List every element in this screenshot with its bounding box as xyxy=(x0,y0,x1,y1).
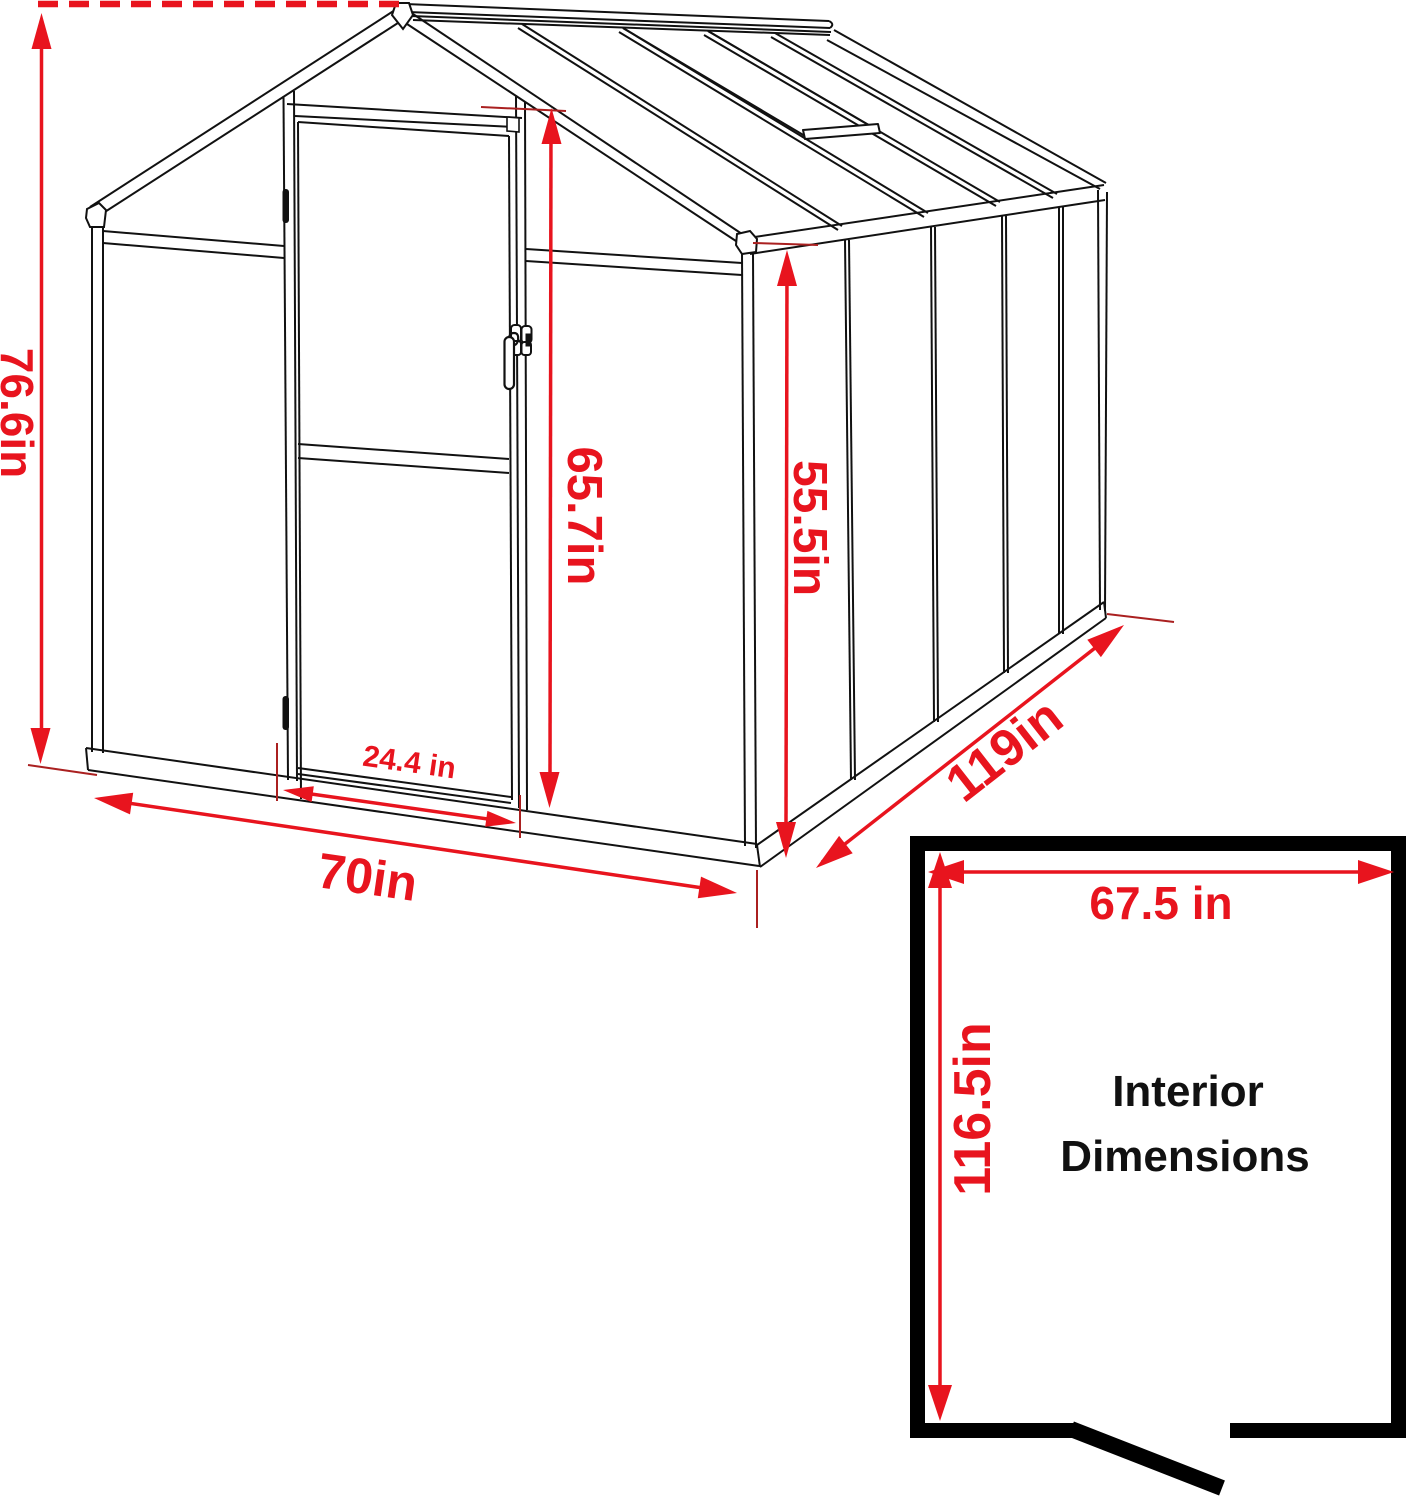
svg-text:116.5in: 116.5in xyxy=(944,1022,1002,1195)
svg-text:Dimensions: Dimensions xyxy=(1060,1132,1309,1181)
svg-text:65.7in: 65.7in xyxy=(557,447,611,586)
svg-text:Interior: Interior xyxy=(1112,1067,1264,1116)
svg-text:76.6in: 76.6in xyxy=(0,348,43,478)
svg-text:55.5in: 55.5in xyxy=(783,460,836,596)
svg-text:67.5 in: 67.5 in xyxy=(1089,877,1232,929)
